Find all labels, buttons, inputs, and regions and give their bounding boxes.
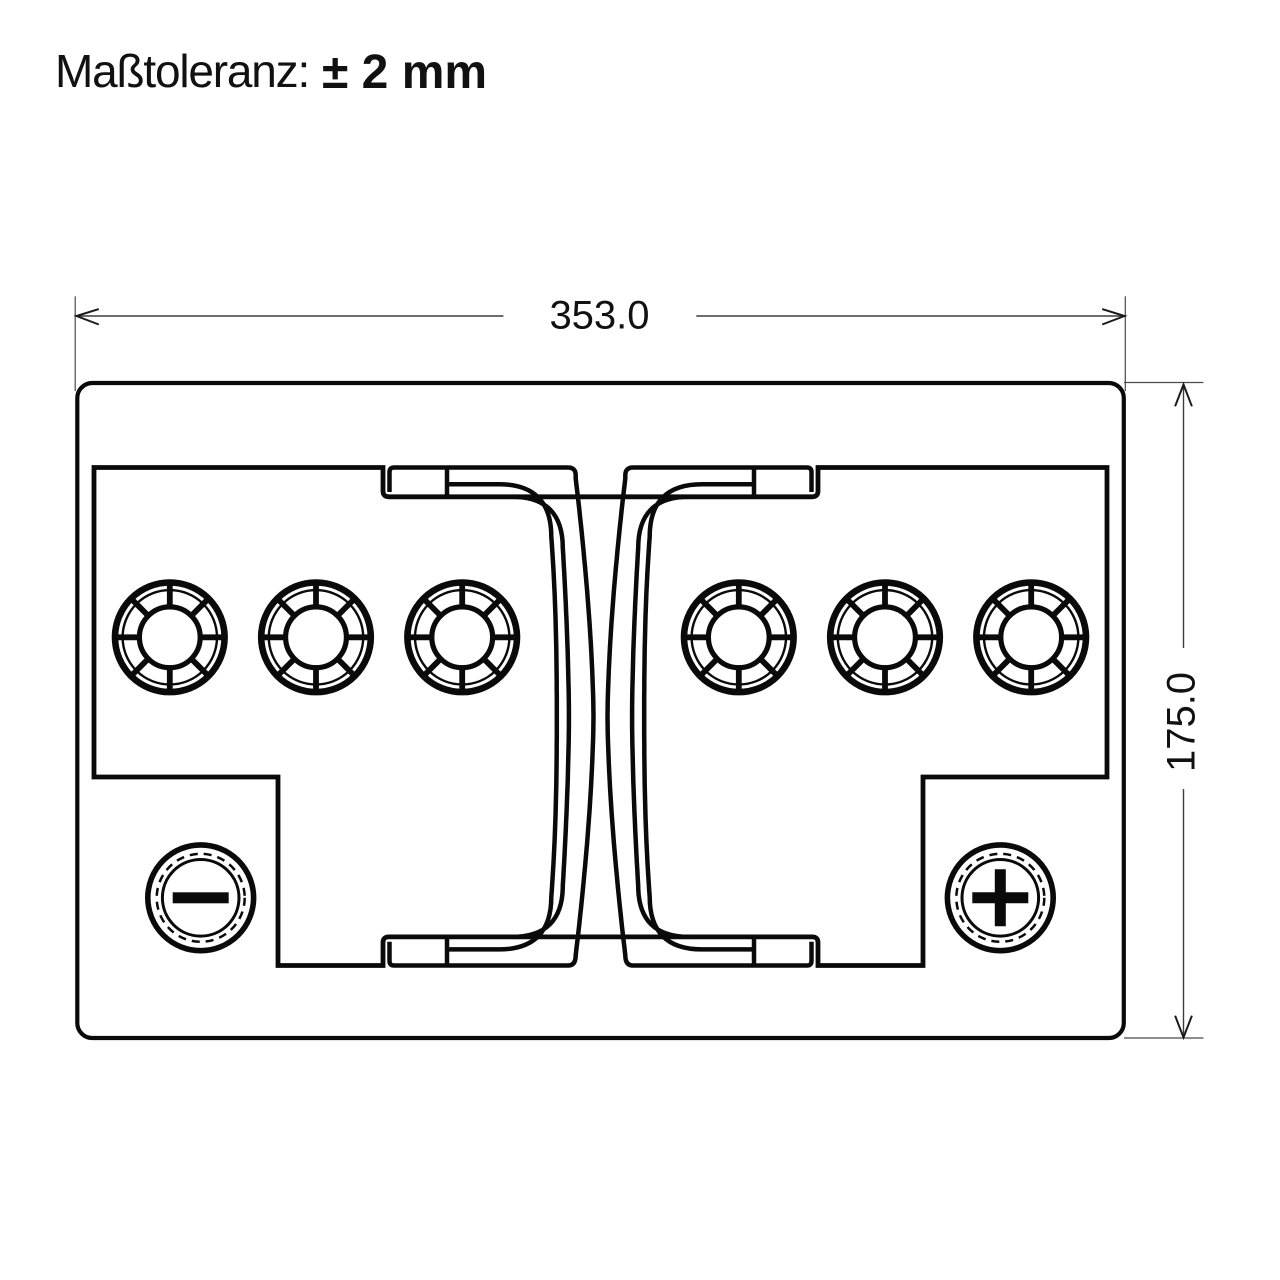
- svg-text:Maßtoleranz:: Maßtoleranz:: [55, 45, 309, 97]
- svg-text:175.0: 175.0: [1160, 672, 1204, 772]
- svg-text:± 2 mm: ± 2 mm: [322, 46, 487, 99]
- svg-text:353.0: 353.0: [549, 294, 649, 338]
